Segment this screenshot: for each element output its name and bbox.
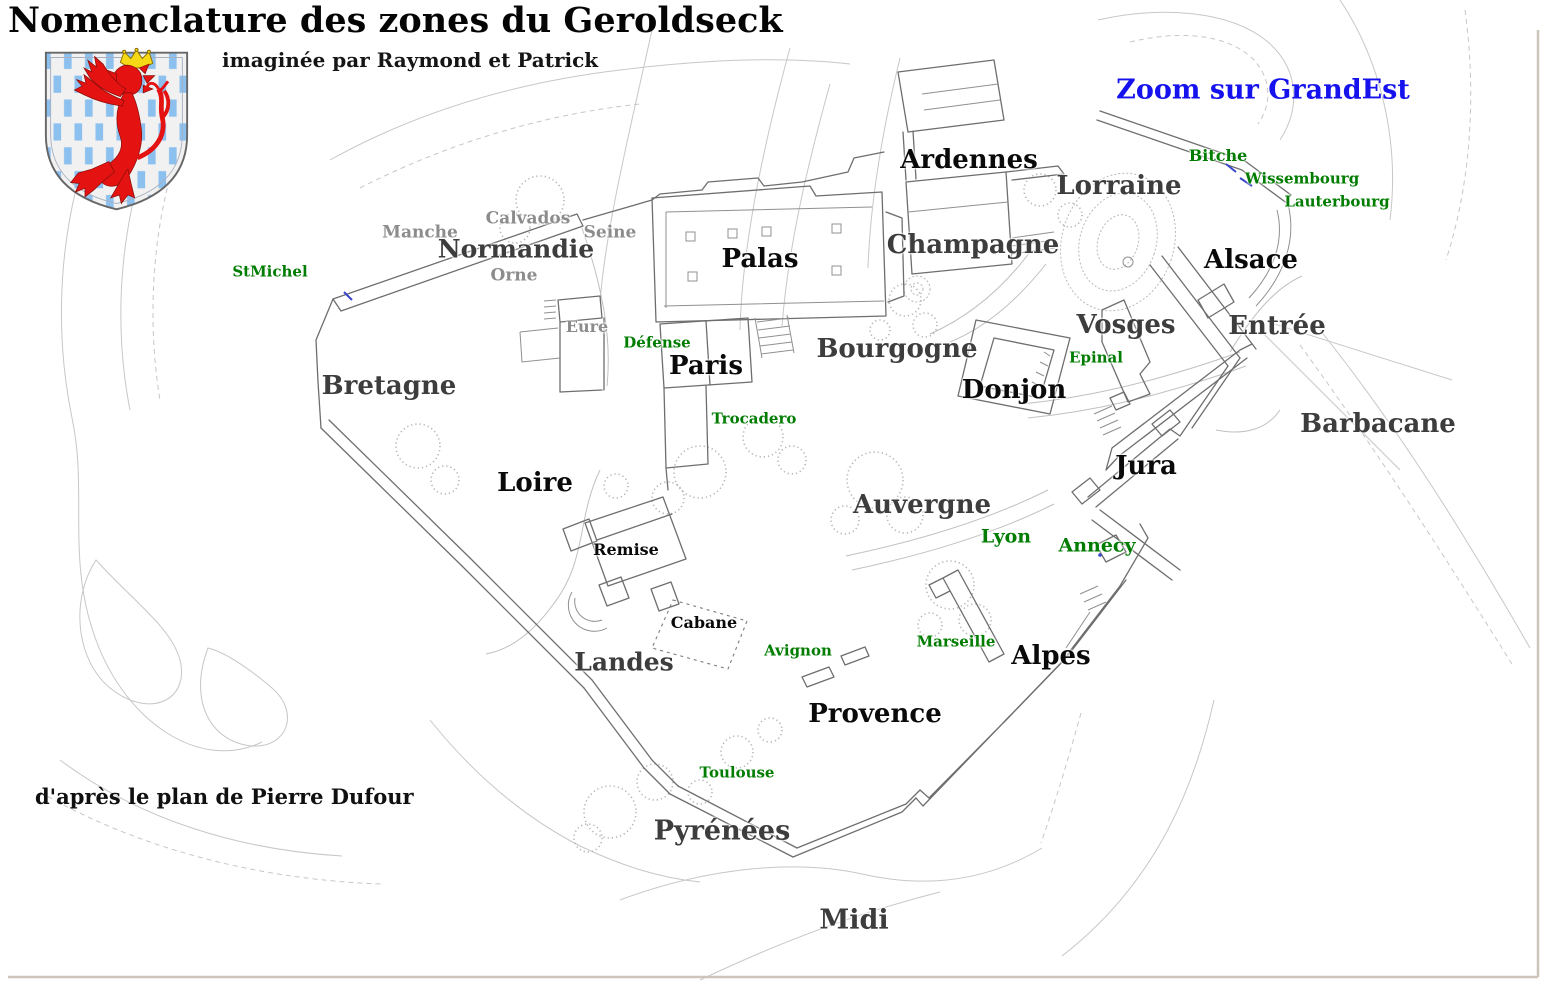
zone-label-orne: Orne (491, 268, 538, 285)
zone-label-alsace: Alsace (1204, 247, 1298, 273)
zone-label-pyrenees: Pyrénées (654, 818, 791, 845)
zone-label-avignon: Avignon (764, 644, 832, 659)
zone-label-toulouse: Toulouse (700, 766, 775, 781)
zone-label-barbacane: Barbacane (1300, 411, 1456, 437)
zone-labels-layer: ArdennesLorraineBitcheWissembourgLauterb… (0, 0, 1541, 982)
zone-label-bitche: Bitche (1189, 148, 1248, 164)
zone-label-midi: Midi (819, 907, 888, 934)
zone-label-bretagne: Bretagne (322, 373, 457, 399)
zone-label-bourgogne: Bourgogne (816, 336, 977, 362)
zone-label-calvados: Calvados (486, 211, 571, 228)
zone-label-wissembourg: Wissembourg (1245, 172, 1359, 187)
zone-label-champagne: Champagne (887, 232, 1060, 258)
zone-label-entree: Entrée (1228, 313, 1326, 339)
zone-label-annecy: Annecy (1058, 537, 1135, 556)
zone-label-loire: Loire (497, 470, 573, 496)
zone-label-lauterbourg: Lauterbourg (1284, 195, 1389, 210)
zone-label-marseille: Marseille (917, 635, 996, 650)
zone-label-lorraine: Lorraine (1056, 173, 1181, 199)
zone-label-donjon: Donjon (962, 377, 1066, 403)
zone-label-provence: Provence (808, 701, 942, 727)
zone-label-stmichel: StMichel (232, 265, 307, 280)
zone-label-normandie: Normandie (438, 237, 594, 262)
zone-label-palas: Palas (721, 246, 798, 272)
zone-label-defense: Défense (623, 336, 690, 351)
zone-label-eure: Eure (566, 319, 608, 335)
zone-label-ardennes: Ardennes (900, 147, 1038, 173)
zone-label-epinal: Epinal (1069, 351, 1123, 366)
zone-label-remise: Remise (593, 542, 659, 558)
zone-label-trocadero: Trocadero (712, 412, 797, 427)
zone-label-auvergne: Auvergne (853, 492, 991, 518)
zone-label-jura: Jura (1115, 453, 1177, 479)
zone-label-lyon: Lyon (981, 528, 1031, 547)
zone-label-cabane: Cabane (671, 615, 737, 631)
zone-label-vosges: Vosges (1076, 312, 1175, 338)
map-canvas: Nomenclature des zones du Geroldseck ima… (0, 0, 1541, 982)
zone-label-landes: Landes (574, 650, 673, 675)
zone-label-paris: Paris (669, 353, 743, 379)
zone-label-alpes: Alpes (1011, 643, 1090, 669)
